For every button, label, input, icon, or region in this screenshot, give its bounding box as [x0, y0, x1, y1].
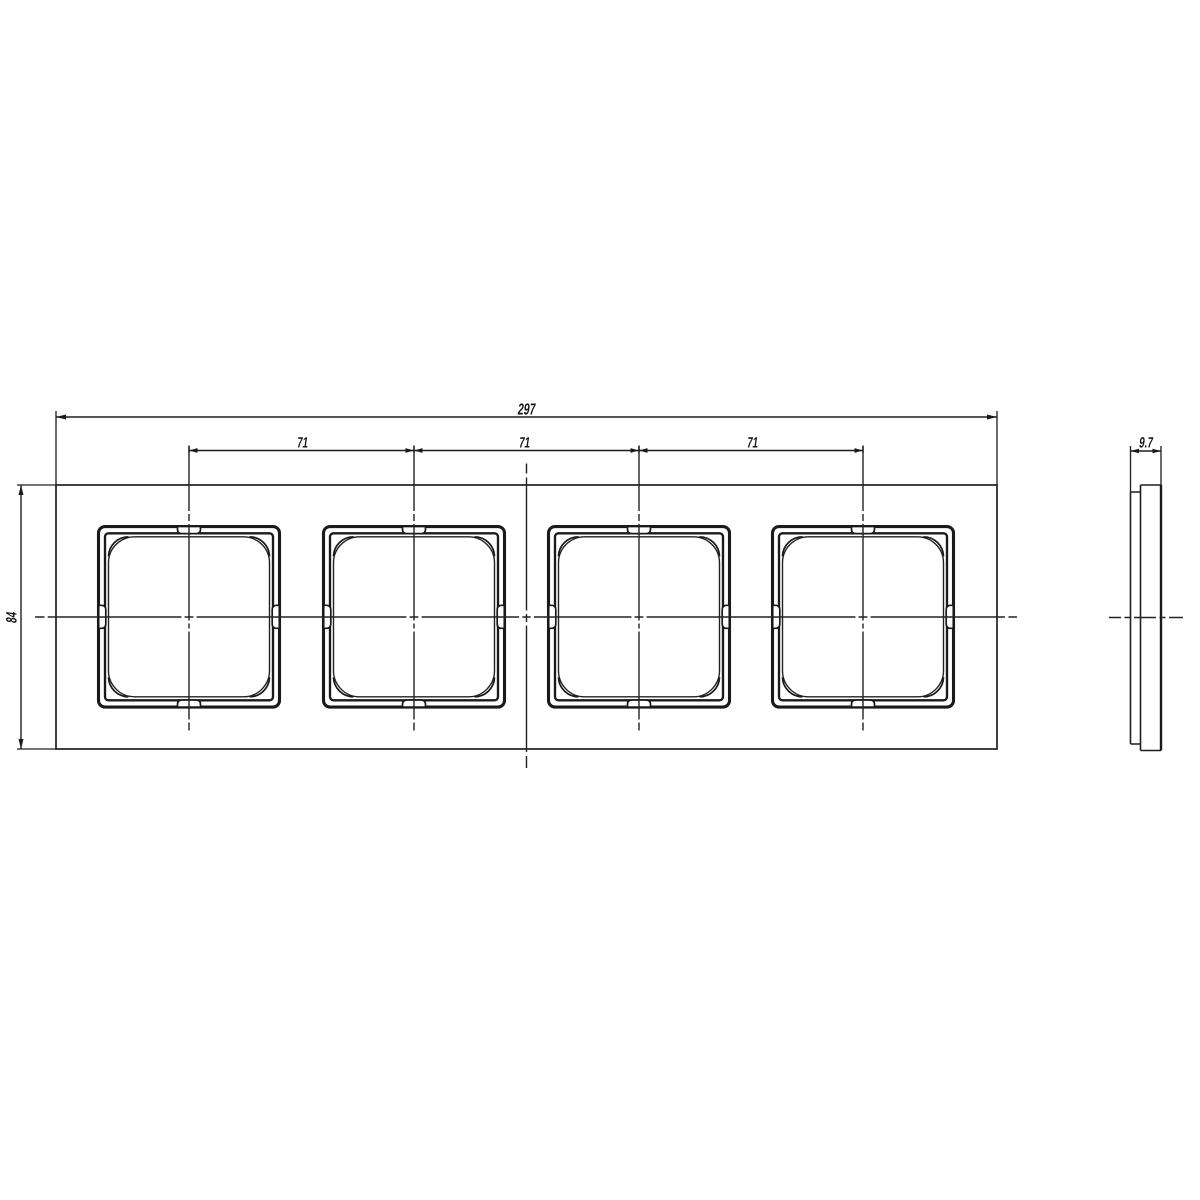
svg-text:71: 71	[746, 433, 759, 451]
svg-text:84: 84	[2, 610, 20, 624]
svg-text:9.7: 9.7	[1138, 433, 1154, 451]
svg-text:71: 71	[518, 433, 531, 451]
svg-text:71: 71	[296, 433, 309, 451]
svg-text:297: 297	[517, 400, 537, 418]
